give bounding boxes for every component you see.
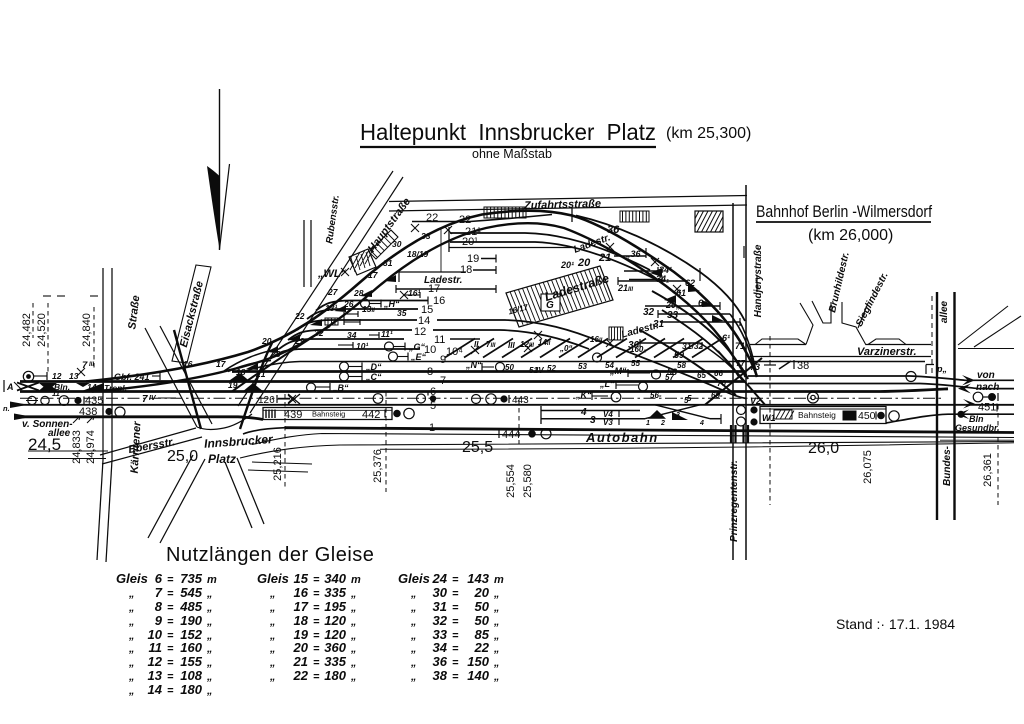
- svg-text:=: =: [313, 616, 320, 628]
- svg-text:140: 140: [467, 668, 489, 683]
- svg-text:5: 5: [430, 400, 436, 412]
- svg-text:442: 442: [362, 409, 380, 421]
- svg-text:=: =: [452, 616, 459, 628]
- svg-text:6: 6: [155, 571, 163, 586]
- svg-text:=: =: [452, 588, 459, 600]
- svg-text:24,974: 24,974: [85, 430, 97, 464]
- svg-text:Handjerystraße: Handjerystraße: [753, 244, 764, 317]
- svg-text:26,075: 26,075: [862, 450, 874, 484]
- svg-text:25,580: 25,580: [522, 464, 534, 498]
- svg-text:38: 38: [797, 360, 809, 372]
- svg-text:nach: nach: [976, 382, 999, 393]
- svg-text:180: 180: [324, 668, 346, 683]
- svg-text:m: m: [351, 574, 361, 586]
- svg-text:=: =: [167, 657, 174, 669]
- svg-text:17: 17: [294, 599, 309, 614]
- svg-text:360: 360: [324, 640, 346, 655]
- svg-text:IV: IV: [536, 366, 544, 375]
- svg-text:„: „: [410, 616, 417, 628]
- svg-text:Gbf. 241: Gbf. 241: [114, 372, 150, 382]
- svg-text:Brunhildestr.: Brunhildestr.: [827, 251, 852, 314]
- svg-text:26,361: 26,361: [982, 453, 994, 487]
- svg-text:18/19: 18/19: [407, 249, 429, 259]
- svg-text:„: „: [128, 643, 135, 655]
- svg-text:V3: V3: [603, 418, 613, 427]
- svg-text:„G“: „G“: [408, 342, 426, 352]
- svg-text:30: 30: [433, 585, 448, 600]
- svg-text:=: =: [452, 657, 459, 669]
- svg-text:„: „: [128, 616, 135, 628]
- svg-text:Prinzregentenstr.: Prinzregentenstr.: [729, 460, 740, 542]
- svg-text:Sieglindestr.: Sieglindestr.: [854, 271, 891, 329]
- svg-text:22: 22: [293, 668, 309, 683]
- svg-text:30: 30: [392, 239, 402, 249]
- svg-text:Platz: Platz: [208, 452, 236, 466]
- svg-text:24: 24: [432, 571, 448, 586]
- svg-text:=: =: [313, 588, 320, 600]
- svg-text:Nutzlängen der Gleise: Nutzlängen der Gleise: [166, 544, 374, 566]
- svg-text:p„: p„: [936, 364, 947, 374]
- svg-text:Gleis: Gleis: [398, 571, 430, 586]
- svg-text:24,520: 24,520: [36, 313, 48, 347]
- svg-text:II: II: [474, 340, 479, 349]
- svg-text:11¹: 11¹: [381, 329, 393, 339]
- svg-text:180: 180: [180, 682, 202, 697]
- svg-text:„: „: [350, 643, 357, 655]
- svg-text:22: 22: [426, 212, 438, 224]
- svg-text:12: 12: [414, 326, 426, 338]
- svg-text:„: „: [269, 671, 276, 683]
- svg-text:„: „: [410, 630, 417, 642]
- svg-text:32: 32: [433, 613, 448, 628]
- svg-text:22: 22: [459, 214, 471, 226]
- svg-text:„: „: [206, 643, 213, 655]
- svg-text:„D“: „D“: [365, 362, 382, 372]
- svg-text:„: „: [410, 657, 417, 669]
- svg-text:„: „: [350, 616, 357, 628]
- svg-text:Autobahn: Autobahn: [585, 430, 659, 445]
- svg-text:=: =: [167, 588, 174, 600]
- svg-text:„: „: [128, 602, 135, 614]
- svg-text:Gleis: Gleis: [257, 571, 289, 586]
- svg-text:„: „: [410, 643, 417, 655]
- svg-text:70: 70: [717, 379, 726, 388]
- svg-text:10¹: 10¹: [356, 341, 368, 351]
- svg-text:24,840: 24,840: [81, 313, 93, 347]
- svg-text:15: 15: [294, 571, 309, 586]
- svg-text:12: 12: [52, 371, 62, 381]
- svg-text:=: =: [452, 671, 459, 683]
- svg-text:Ladestr.: Ladestr.: [424, 275, 462, 286]
- svg-text:3: 3: [676, 412, 680, 419]
- svg-text:=: =: [167, 616, 174, 628]
- svg-text:„M“: „M“: [609, 366, 627, 376]
- svg-text:20¹: 20¹: [462, 236, 478, 248]
- svg-text:6¹: 6¹: [722, 333, 730, 343]
- svg-text:35: 35: [397, 308, 407, 318]
- svg-text:„: „: [350, 671, 357, 683]
- svg-text:=: =: [313, 643, 320, 655]
- svg-text:17: 17: [216, 359, 227, 369]
- svg-text:„K“: „K“: [575, 390, 592, 400]
- svg-text:Stand :· 17.1. 1984: Stand :· 17.1. 1984: [836, 616, 955, 632]
- svg-text:III: III: [508, 341, 515, 350]
- svg-text:33: 33: [421, 231, 431, 241]
- svg-text:5: 5: [684, 396, 689, 405]
- svg-text:13: 13: [148, 668, 163, 683]
- svg-text:20: 20: [577, 257, 591, 269]
- svg-text:53: 53: [578, 362, 587, 371]
- svg-text:=: =: [167, 671, 174, 683]
- svg-text:=: =: [313, 657, 320, 669]
- svg-text:11: 11: [149, 640, 163, 655]
- svg-text:16: 16: [183, 359, 193, 369]
- svg-text:Varzinerstr.: Varzinerstr.: [857, 346, 917, 358]
- svg-text:„: „: [269, 616, 276, 628]
- svg-text:„: „: [128, 657, 135, 669]
- svg-text:„: „: [493, 657, 500, 669]
- svg-text:20¹: 20¹: [560, 260, 574, 270]
- svg-text:=: =: [313, 602, 320, 614]
- svg-text:18: 18: [294, 613, 309, 628]
- svg-text:V2: V2: [750, 396, 761, 406]
- svg-text:„: „: [269, 630, 276, 642]
- svg-text:444: 444: [502, 429, 520, 441]
- svg-text:34: 34: [433, 640, 448, 655]
- svg-text:„: „: [269, 657, 276, 669]
- svg-text:=: =: [452, 574, 459, 586]
- svg-text:„: „: [410, 671, 417, 683]
- svg-text:190: 190: [180, 613, 202, 628]
- svg-text:438: 438: [79, 406, 97, 418]
- svg-text:1: 1: [646, 420, 650, 427]
- svg-text:8: 8: [155, 599, 163, 614]
- svg-text:27: 27: [327, 287, 339, 297]
- svg-text:Gesundbr.: Gesundbr.: [955, 423, 1000, 433]
- svg-text:„B“: „B“: [332, 383, 349, 393]
- svg-text:22: 22: [474, 640, 490, 655]
- svg-text:13¹: 13¹: [325, 303, 337, 313]
- svg-text:14: 14: [148, 682, 163, 697]
- svg-text:38: 38: [433, 668, 448, 683]
- svg-text:108: 108: [180, 668, 202, 683]
- svg-text:Bahnsteig: Bahnsteig: [312, 410, 345, 419]
- svg-text:m: m: [494, 574, 504, 586]
- svg-text:„36: „36: [625, 249, 642, 259]
- svg-text:22: 22: [294, 311, 305, 321]
- svg-text:„: „: [493, 616, 500, 628]
- svg-text:=: =: [452, 630, 459, 642]
- svg-text:„: „: [493, 602, 500, 614]
- svg-text:Straße: Straße: [126, 295, 142, 330]
- svg-text:(km 25,300): (km 25,300): [666, 125, 751, 142]
- svg-text:50: 50: [475, 599, 490, 614]
- svg-text:33: 33: [667, 310, 679, 321]
- svg-text:34: 34: [347, 330, 357, 340]
- svg-text:„: „: [128, 685, 135, 697]
- svg-text:36: 36: [433, 654, 448, 669]
- svg-text:160₁: 160₁: [630, 345, 646, 354]
- svg-text:„: „: [350, 588, 357, 600]
- svg-text:4: 4: [580, 407, 587, 418]
- svg-text:16¹: 16¹: [408, 288, 420, 298]
- svg-text:52: 52: [547, 364, 556, 373]
- svg-text:59: 59: [674, 350, 684, 360]
- svg-text:21: 21: [293, 654, 308, 669]
- svg-text:m: m: [207, 574, 217, 586]
- svg-text:335: 335: [324, 585, 346, 600]
- svg-text:450: 450: [858, 410, 876, 422]
- svg-text:21: 21: [598, 252, 611, 264]
- svg-text:443: 443: [512, 395, 529, 406]
- svg-text:„: „: [206, 602, 213, 614]
- svg-text:„: „: [493, 643, 500, 655]
- svg-text:=: =: [167, 685, 174, 697]
- svg-text:545: 545: [180, 585, 202, 600]
- svg-text:155: 155: [180, 654, 202, 669]
- svg-text:451: 451: [978, 402, 996, 414]
- svg-text:71: 71: [735, 341, 745, 351]
- svg-text:„: „: [350, 602, 357, 614]
- svg-text:„: „: [206, 588, 213, 600]
- svg-text:3: 3: [590, 415, 596, 426]
- svg-text:Rubensstr.: Rubensstr.: [324, 194, 342, 244]
- svg-text:„L“: „L“: [599, 379, 615, 389]
- svg-text:von: von: [977, 370, 995, 381]
- svg-text:25,216: 25,216: [272, 447, 284, 481]
- svg-text:„: „: [206, 657, 213, 669]
- svg-text:„: „: [269, 602, 276, 614]
- svg-text:=: =: [167, 574, 174, 586]
- svg-text:„: „: [350, 630, 357, 642]
- svg-text:21III: 21III: [617, 283, 633, 293]
- svg-text:77: 77: [736, 359, 745, 368]
- svg-text:25,5: 25,5: [462, 439, 493, 456]
- svg-text:=: =: [167, 643, 174, 655]
- svg-text:12: 12: [148, 654, 163, 669]
- svg-text:Haltepunkt Innsbrucker Platz: Haltepunkt Innsbrucker Platz: [360, 119, 656, 145]
- svg-text:„: „: [128, 671, 135, 683]
- svg-text:W1: W1: [762, 413, 776, 423]
- svg-text:=: =: [167, 602, 174, 614]
- svg-text:65: 65: [697, 371, 706, 380]
- svg-text:439: 439: [284, 409, 302, 421]
- svg-text:25,554: 25,554: [505, 464, 517, 498]
- svg-text:ohne Maßstab: ohne Maßstab: [472, 147, 552, 161]
- svg-text:„E“: „E“: [410, 352, 427, 362]
- svg-text:allee: allee: [48, 428, 71, 439]
- svg-text:11: 11: [52, 389, 60, 398]
- svg-text:Bahnsteig: Bahnsteig: [798, 410, 836, 420]
- svg-text:120: 120: [324, 613, 346, 628]
- svg-text:12III: 12III: [520, 340, 534, 349]
- svg-text:7: 7: [142, 394, 148, 405]
- svg-text:50: 50: [505, 363, 514, 372]
- svg-text:Bahnhof Berlin -Wilmersdorf: Bahnhof Berlin -Wilmersdorf: [756, 202, 932, 221]
- svg-text:=: =: [452, 643, 459, 655]
- svg-text:„: „: [206, 685, 213, 697]
- svg-text:Gleis: Gleis: [116, 571, 148, 586]
- svg-text:195: 195: [324, 599, 346, 614]
- svg-text:„: „: [206, 616, 213, 628]
- svg-text:=: =: [452, 602, 459, 614]
- svg-text:(km 26,000): (km 26,000): [808, 227, 893, 244]
- svg-text:„: „: [206, 671, 213, 683]
- svg-text:69-: 69-: [711, 391, 723, 400]
- svg-text:„: „: [128, 630, 135, 642]
- svg-text:Bundes-: Bundes-: [942, 445, 953, 486]
- svg-text:50: 50: [475, 613, 490, 628]
- svg-text:16: 16: [433, 295, 445, 307]
- svg-text:„: „: [206, 630, 213, 642]
- svg-text:n.: n.: [3, 404, 10, 413]
- svg-text:55: 55: [631, 359, 640, 368]
- svg-text:10⁴: 10⁴: [446, 346, 463, 358]
- svg-text:28: 28: [353, 288, 364, 298]
- svg-text:„: „: [493, 588, 500, 600]
- svg-text:9: 9: [155, 613, 163, 628]
- svg-text:32: 32: [314, 328, 324, 338]
- svg-text:335: 335: [324, 654, 346, 669]
- svg-text:57: 57: [665, 373, 674, 382]
- svg-text:150: 150: [467, 654, 489, 669]
- svg-text:16II: 16II: [590, 335, 603, 344]
- svg-text:24,833: 24,833: [71, 430, 83, 464]
- svg-text:allee: allee: [939, 300, 950, 323]
- svg-text:Trepl.: Trepl.: [104, 383, 127, 393]
- svg-text:735: 735: [180, 571, 202, 586]
- svg-text:„: „: [269, 643, 276, 655]
- svg-text:„: „: [493, 630, 500, 642]
- svg-text:„C“: „C“: [365, 372, 382, 382]
- svg-text:31: 31: [433, 599, 447, 614]
- svg-text:126: 126: [258, 395, 275, 406]
- svg-text:7: 7: [155, 585, 163, 600]
- svg-text:=: =: [167, 630, 174, 642]
- svg-text:„: „: [128, 588, 135, 600]
- svg-text:„: „: [410, 588, 417, 600]
- svg-text:32: 32: [643, 307, 655, 318]
- svg-text:2: 2: [660, 420, 665, 427]
- svg-text:31: 31: [383, 258, 393, 268]
- svg-text:31/32: 31/32: [682, 341, 704, 351]
- svg-text:17: 17: [368, 270, 379, 280]
- svg-text:8: 8: [427, 366, 433, 378]
- svg-text:1: 1: [429, 422, 435, 434]
- svg-text:„H“: „H“: [383, 299, 400, 309]
- svg-text:„: „: [350, 657, 357, 669]
- svg-text:26,0: 26,0: [808, 440, 839, 457]
- svg-text:58: 58: [677, 361, 686, 370]
- svg-text:4: 4: [699, 420, 704, 427]
- svg-text:73: 73: [750, 362, 760, 372]
- svg-text:A: A: [6, 382, 14, 392]
- svg-text:66: 66: [714, 369, 723, 378]
- svg-text:„0“: „0“: [559, 344, 572, 353]
- svg-text:24,482: 24,482: [21, 313, 33, 347]
- svg-text:340: 340: [324, 571, 346, 586]
- svg-text:21: 21: [255, 369, 266, 379]
- svg-text:143: 143: [467, 571, 489, 586]
- svg-text:„N“: „N“: [465, 360, 482, 370]
- svg-text:=: =: [313, 671, 320, 683]
- svg-text:„: „: [493, 671, 500, 683]
- svg-text:20: 20: [293, 640, 309, 655]
- svg-text:„: „: [269, 588, 276, 600]
- svg-text:56-: 56-: [650, 391, 662, 400]
- svg-text:„: „: [410, 602, 417, 614]
- svg-text:25,0: 25,0: [167, 448, 198, 465]
- svg-text:=: =: [313, 630, 320, 642]
- svg-text:=: =: [313, 574, 320, 586]
- svg-text:7: 7: [440, 375, 446, 387]
- svg-text:485: 485: [179, 599, 202, 614]
- svg-text:16: 16: [294, 585, 309, 600]
- svg-text:160: 160: [180, 640, 202, 655]
- svg-text:20: 20: [261, 336, 272, 346]
- svg-text:Eisackstraße: Eisackstraße: [178, 280, 206, 349]
- svg-text:9: 9: [440, 354, 446, 366]
- svg-text:20: 20: [474, 585, 490, 600]
- svg-text:25,376: 25,376: [372, 449, 384, 483]
